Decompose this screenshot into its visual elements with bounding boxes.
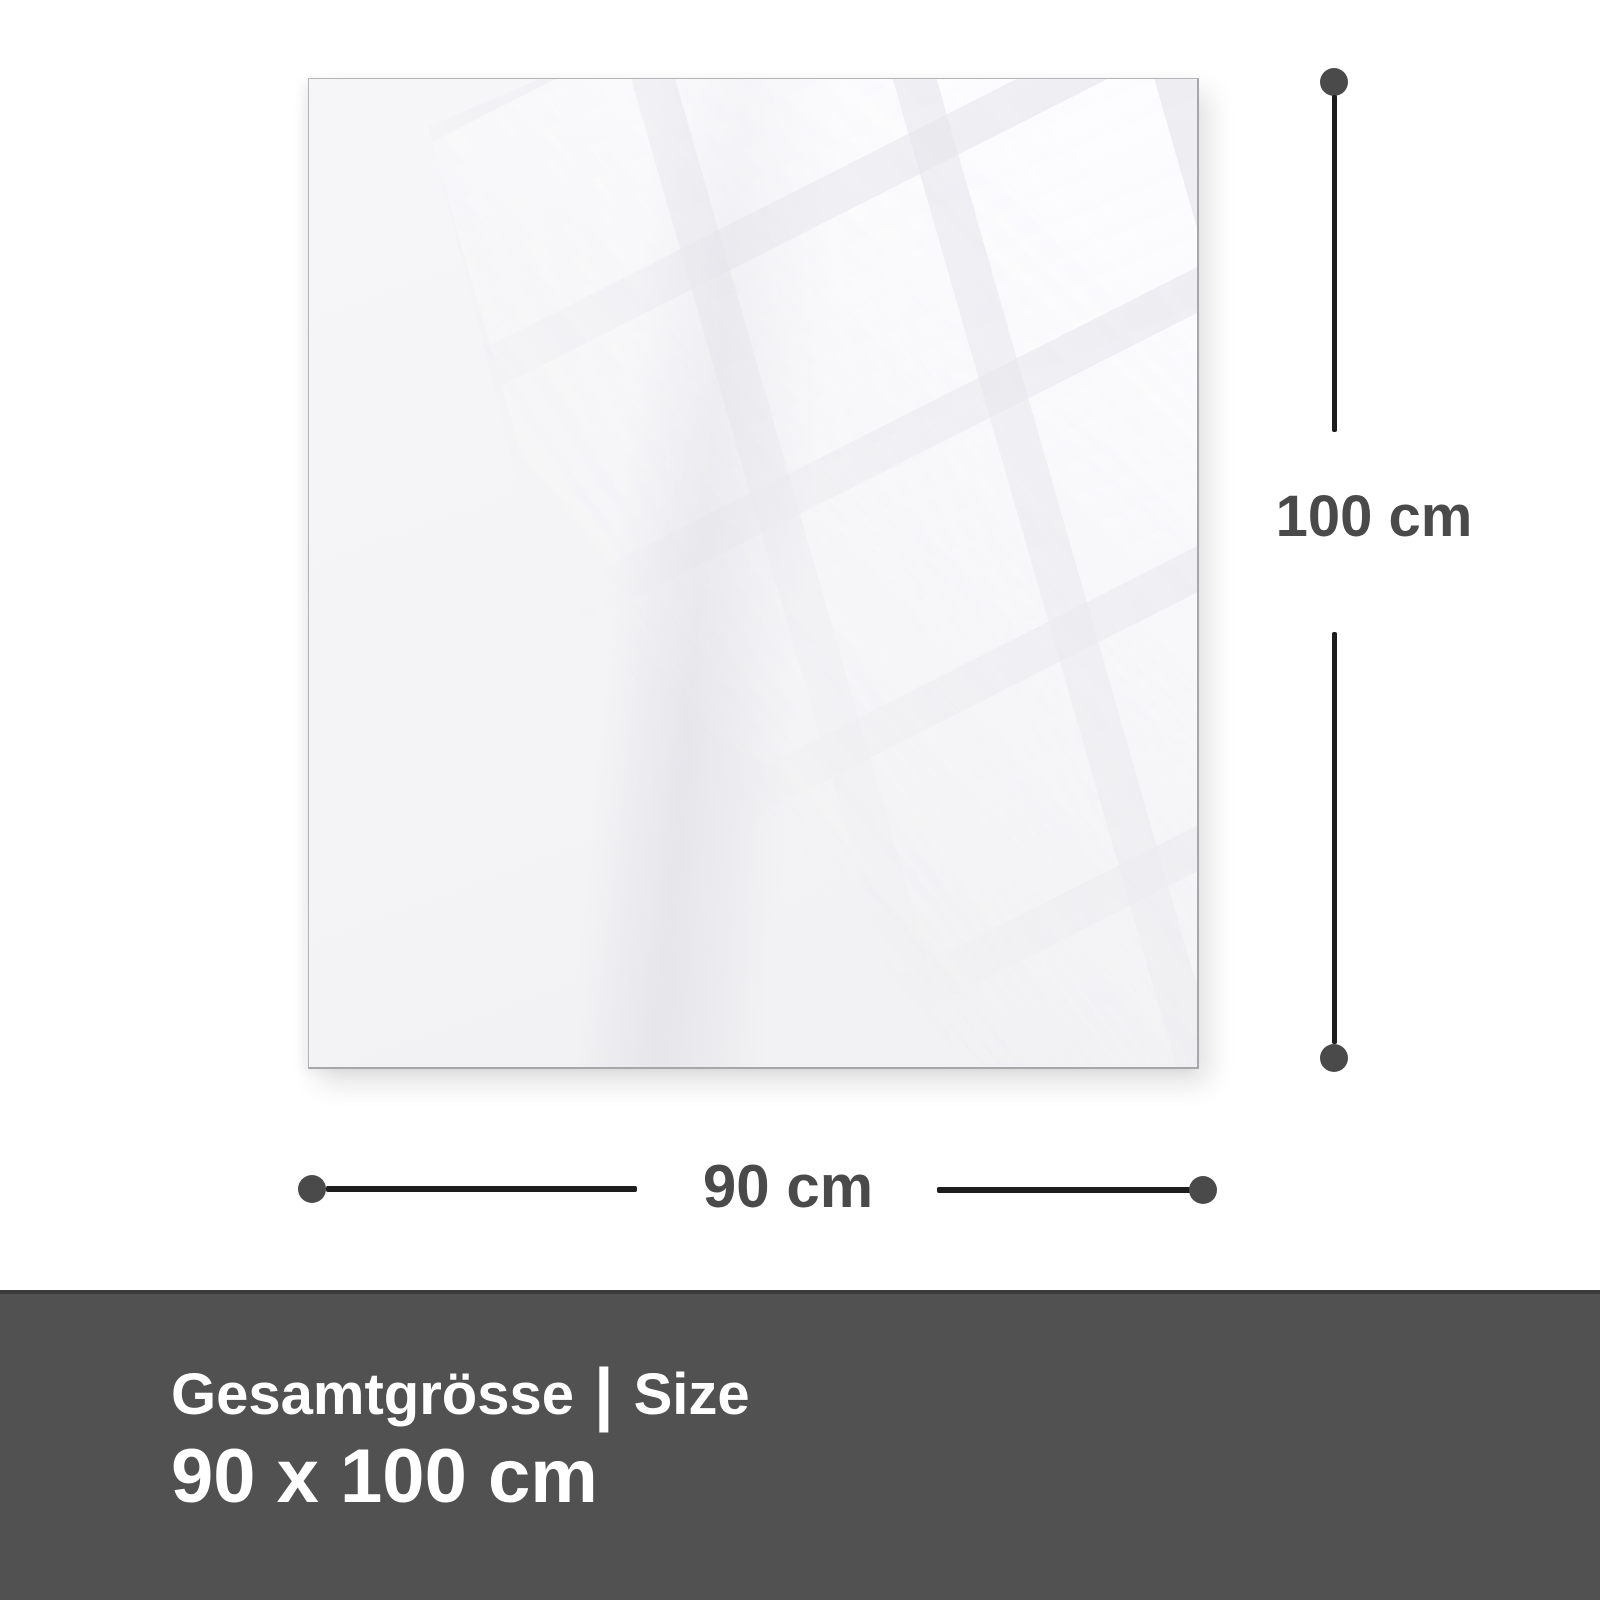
glass-reflection-grid <box>428 78 1199 1069</box>
horizontal-dimension-line-right <box>937 1187 1191 1193</box>
vertical-dimension-line-upper <box>1332 95 1337 432</box>
horizontal-dimension-label: 90 cm <box>658 1157 918 1217</box>
footer-size-banner: Gesamtgrösse | Size 90 x 100 cm <box>0 1290 1600 1600</box>
vertical-dimension-label: 100 cm <box>1244 488 1504 546</box>
vertical-dimension-line-lower <box>1332 632 1337 1044</box>
product-size-diagram: 100 cm 90 cm Gesamtgrösse | Size 90 x 10… <box>0 0 1600 1600</box>
footer-title-separator: | <box>594 1361 614 1425</box>
dimension-endpoint-dot-right <box>1189 1176 1217 1204</box>
dimension-endpoint-dot-left <box>298 1175 326 1203</box>
footer-title-row: Gesamtgrösse | Size <box>171 1363 750 1427</box>
dimension-endpoint-dot-bottom <box>1320 1044 1348 1072</box>
footer-size-value: 90 x 100 cm <box>171 1437 598 1517</box>
footer-title-english: Size <box>634 1363 750 1427</box>
glass-panel <box>308 78 1199 1069</box>
horizontal-dimension-line-left <box>326 1186 637 1192</box>
footer-title-german: Gesamtgrösse <box>171 1363 574 1427</box>
dimension-endpoint-dot-top <box>1320 68 1348 96</box>
